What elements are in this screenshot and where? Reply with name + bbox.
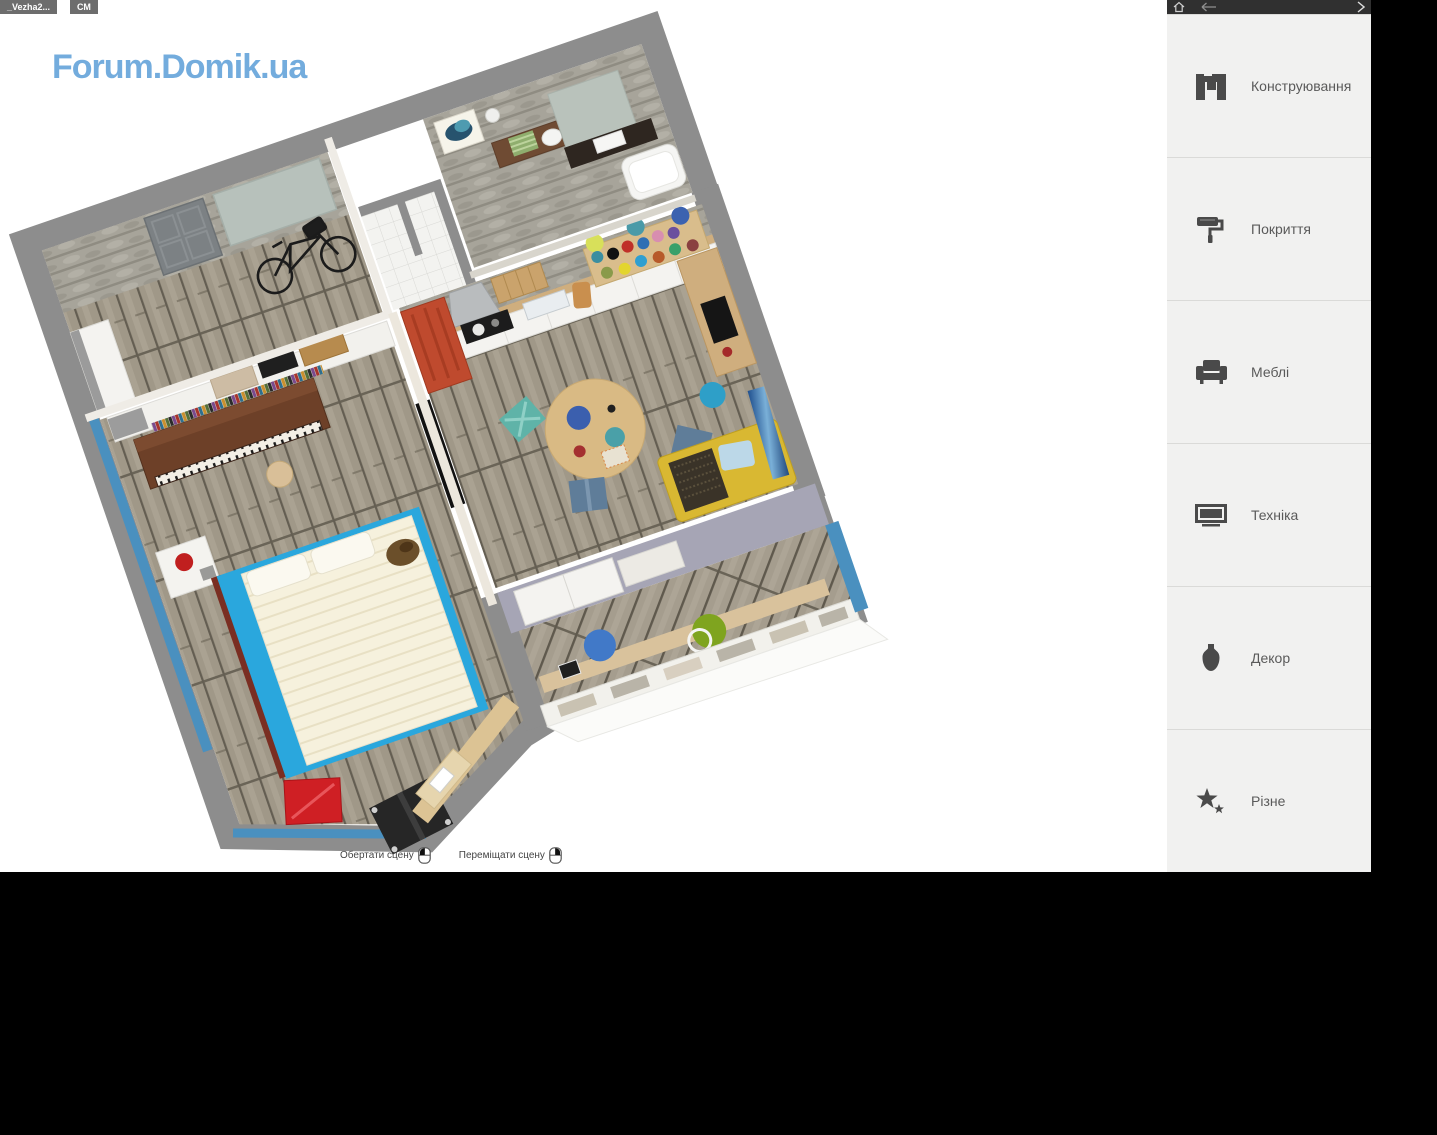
sidebar-topbar xyxy=(1167,0,1371,14)
paint-roller-icon xyxy=(1193,214,1229,244)
hint-pan: Переміщати сцену xyxy=(459,847,562,864)
construction-plan-icon xyxy=(1193,72,1229,101)
stars-icon xyxy=(1193,788,1229,815)
hint-pan-label: Переміщати сцену xyxy=(459,850,545,861)
sidebar-item-coverings[interactable]: Покриття xyxy=(1167,157,1371,300)
floorplan-viewport[interactable]: Forum.Domik.ua _Vezha2... СМ Обертати сц… xyxy=(0,0,1167,872)
app-window: Forum.Domik.ua _Vezha2... СМ Обертати сц… xyxy=(0,0,1371,872)
project-tabs: _Vezha2... СМ xyxy=(0,0,98,14)
forward-chevron-icon[interactable] xyxy=(1357,1,1365,13)
sidebar-item-label: Конструювання xyxy=(1251,78,1351,94)
tab-project-name[interactable]: _Vezha2... xyxy=(0,0,57,14)
sidebar-item-construction[interactable]: Конструювання xyxy=(1167,14,1371,157)
tv-icon xyxy=(1193,504,1229,527)
vase-icon xyxy=(1193,643,1229,673)
sidebar-item-label: Різне xyxy=(1251,793,1285,809)
letterbox-bottom xyxy=(0,872,1437,1135)
back-arrow-icon[interactable] xyxy=(1201,2,1217,12)
mouse-right-click-icon xyxy=(549,847,562,864)
red-chair[interactable] xyxy=(284,778,342,825)
sidebar-item-misc[interactable]: Різне xyxy=(1167,729,1371,872)
sidebar-item-appliances[interactable]: Техніка xyxy=(1167,443,1371,586)
hint-rotate-label: Обертати сцену xyxy=(340,850,414,861)
tab-project-label: _Vezha2... xyxy=(7,2,50,12)
tab-units[interactable]: СМ xyxy=(70,0,98,14)
floorplan-render[interactable] xyxy=(0,0,1167,872)
home-icon[interactable] xyxy=(1173,1,1185,13)
armchair-icon xyxy=(1193,360,1229,385)
scene-hints: Обертати сцену Переміщати сцену xyxy=(340,847,562,864)
tab-units-label: СМ xyxy=(77,2,91,12)
sidebar-item-furniture[interactable]: Меблі xyxy=(1167,300,1371,443)
sidebar-item-label: Декор xyxy=(1251,650,1290,666)
sidebar-item-label: Меблі xyxy=(1251,364,1289,380)
category-sidebar: Конструювання Покриття xyxy=(1167,0,1371,872)
letterbox-right xyxy=(1371,0,1437,872)
sidebar-item-decor[interactable]: Декор xyxy=(1167,586,1371,729)
sidebar-item-label: Техніка xyxy=(1251,507,1298,523)
cutting-board[interactable] xyxy=(572,281,592,308)
chair-gray-1[interactable] xyxy=(568,477,608,513)
sidebar-item-label: Покриття xyxy=(1251,221,1311,237)
mouse-left-click-icon xyxy=(418,847,431,864)
hint-rotate: Обертати сцену xyxy=(340,847,431,864)
